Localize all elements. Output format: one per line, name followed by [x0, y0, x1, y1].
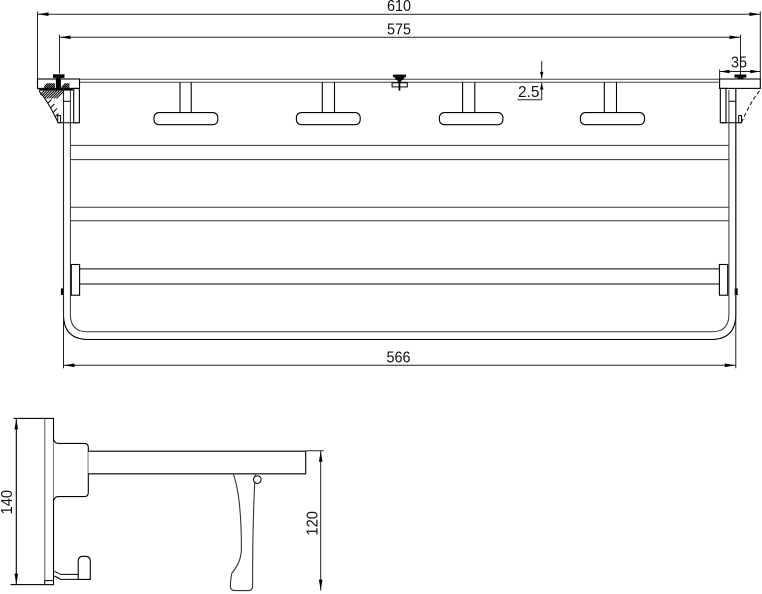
svg-text:140: 140: [0, 490, 16, 515]
svg-text:575: 575: [387, 22, 411, 39]
svg-text:2.5: 2.5: [518, 84, 540, 101]
svg-text:610: 610: [387, 0, 411, 15]
svg-text:35: 35: [731, 55, 747, 72]
svg-text:566: 566: [387, 350, 411, 367]
svg-text:120: 120: [304, 511, 321, 536]
